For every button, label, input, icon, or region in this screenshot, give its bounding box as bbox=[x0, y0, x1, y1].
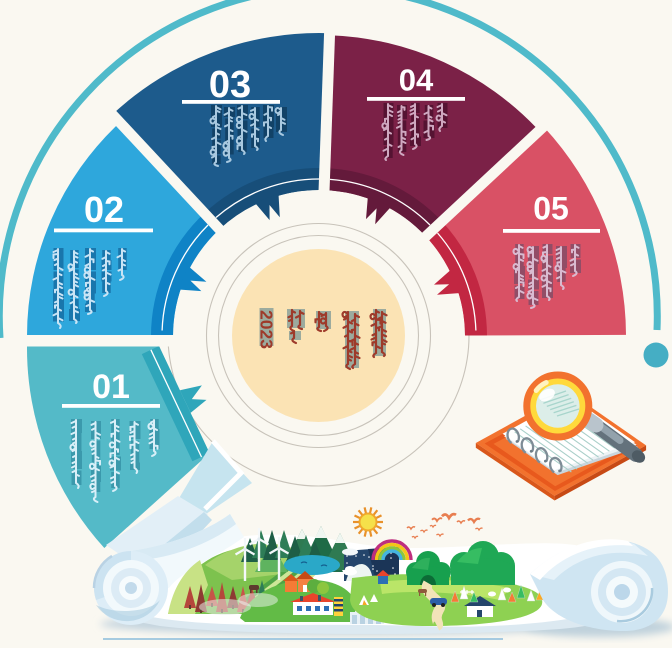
svg-text:01: 01 bbox=[92, 368, 130, 406]
svg-text:02: 02 bbox=[84, 189, 124, 230]
svg-text:05: 05 bbox=[533, 191, 569, 227]
svg-text:2023: 2023 bbox=[257, 310, 277, 349]
svg-text:03: 03 bbox=[209, 64, 251, 106]
svg-text:04: 04 bbox=[399, 63, 434, 98]
